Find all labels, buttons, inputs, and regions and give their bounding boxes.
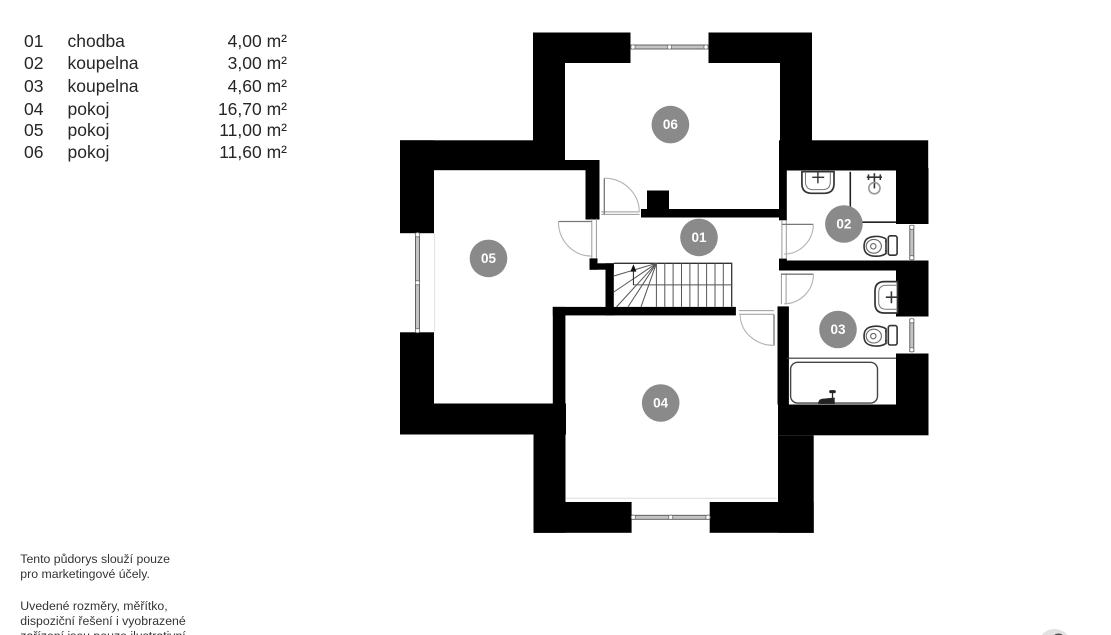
svg-text:06: 06 <box>663 117 679 132</box>
svg-text:03: 03 <box>830 322 846 337</box>
svg-text:05: 05 <box>481 251 497 266</box>
svg-text:02: 02 <box>836 217 851 232</box>
svg-text:04: 04 <box>653 396 669 411</box>
svg-text:01: 01 <box>691 230 707 245</box>
